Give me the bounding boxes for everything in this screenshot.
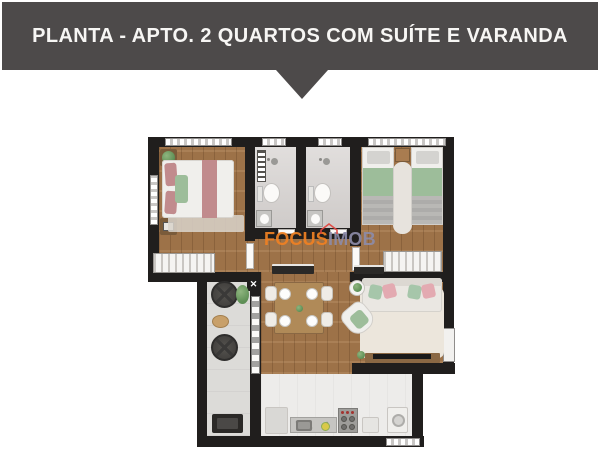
dining-table xyxy=(274,282,324,334)
stove-knob-3 xyxy=(351,411,354,414)
dining-sideboard xyxy=(272,264,314,274)
tv xyxy=(373,354,431,359)
bed-left-pillow xyxy=(367,151,390,164)
bed-left-blanket-gray xyxy=(363,196,393,224)
plate-2 xyxy=(306,288,318,300)
banner-pointer-arrow xyxy=(276,70,328,99)
bed-right-blanket-green xyxy=(412,168,442,196)
wall-suite-bath xyxy=(245,137,255,241)
sofa-pillow-pink-2 xyxy=(421,283,437,299)
side-table-plant-icon xyxy=(353,283,362,292)
stove-knob-2 xyxy=(346,411,349,414)
stove-burner-3 xyxy=(341,424,347,430)
kitchen-counter xyxy=(290,417,337,433)
dining-chair-2 xyxy=(265,312,277,327)
bedroom2-nightstand xyxy=(395,148,410,162)
floorplan: ✕ xyxy=(140,120,456,450)
wall-kitchen-right xyxy=(412,372,423,447)
stove xyxy=(338,408,358,433)
stove-knob-1 xyxy=(341,411,344,414)
suite-bed xyxy=(162,160,234,218)
dining-chair-3 xyxy=(321,286,333,301)
service-window xyxy=(386,438,420,446)
suite-wardrobe xyxy=(153,253,215,273)
stove-burner-1 xyxy=(341,416,347,422)
stove-burner-2 xyxy=(349,416,355,422)
suite-door xyxy=(246,243,254,269)
dining-chair-4 xyxy=(321,312,333,327)
balcony-sliding-door xyxy=(251,296,260,374)
table-centerpiece xyxy=(296,305,303,312)
bedroom2-wardrobe xyxy=(383,251,442,272)
bedroom2-bed-left xyxy=(362,147,394,225)
floorplan-page: PLANTA - APTO. 2 QUARTOS COM SUÍTE E VAR… xyxy=(0,0,600,462)
bed-left-blanket-green xyxy=(363,168,393,196)
plate-1 xyxy=(279,288,291,300)
living-plant-icon xyxy=(357,351,365,359)
bath1-toilet-bowl xyxy=(263,183,280,203)
suite-green-throw xyxy=(175,175,188,203)
watermark-house-icon xyxy=(318,222,340,236)
bath1-sink xyxy=(256,210,272,227)
living-side-table xyxy=(349,280,365,296)
balcony-chair-2 xyxy=(211,334,238,361)
balcony-plant-icon xyxy=(236,285,249,304)
sofa-pillow-green-2 xyxy=(407,284,422,300)
page-title: PLANTA - APTO. 2 QUARTOS COM SUÍTE E VAR… xyxy=(32,25,568,48)
wall-living-bottom xyxy=(352,363,455,374)
armchair-cushion xyxy=(348,308,370,330)
bath2-shower-icon xyxy=(323,158,330,165)
suite-side-window xyxy=(150,175,158,225)
bedroom2-bed-right xyxy=(411,147,443,225)
bed-right-pillow xyxy=(416,151,439,164)
suite-bed-runner xyxy=(202,160,217,218)
sofa-pillow-green-1 xyxy=(368,284,384,300)
wall-balcony-left xyxy=(197,272,207,447)
column-marker: ✕ xyxy=(247,278,260,291)
dining-floor-strip xyxy=(261,363,352,374)
sink-basin xyxy=(298,422,310,429)
plate-3 xyxy=(279,315,291,327)
watermark: FOCUSIMOB xyxy=(264,229,376,250)
balcony-table xyxy=(212,315,229,328)
bath1-shower-icon xyxy=(271,158,278,165)
bath2-toilet-bowl xyxy=(314,183,331,203)
fridge xyxy=(265,407,288,434)
washing-machine xyxy=(387,407,408,433)
living-console xyxy=(354,265,384,274)
bathroom2-window xyxy=(318,138,342,146)
grill-lid xyxy=(217,418,238,429)
living-wall-recess xyxy=(443,328,455,362)
living-sofa xyxy=(362,278,442,312)
plate-4 xyxy=(306,315,318,327)
dining-chair-1 xyxy=(265,286,277,301)
balcony-grill xyxy=(212,414,243,433)
kitchen-bin xyxy=(362,417,379,433)
bath1-shelf xyxy=(257,150,266,182)
wall-bath-divider xyxy=(296,137,306,232)
title-banner: PLANTA - APTO. 2 QUARTOS COM SUÍTE E VAR… xyxy=(2,2,598,70)
stove-burner-4 xyxy=(349,424,355,430)
bedroom2-window xyxy=(368,138,446,146)
bed-right-blanket-gray xyxy=(412,196,442,224)
washer-door xyxy=(392,414,405,427)
balcony-chair-1 xyxy=(211,281,238,308)
bedroom2-rug xyxy=(393,162,412,234)
bath1-basin xyxy=(260,214,269,224)
bathroom1-window xyxy=(262,138,286,146)
kitchen-sink xyxy=(296,420,312,431)
fruit-bowl xyxy=(321,422,330,431)
suite-window xyxy=(165,138,232,146)
